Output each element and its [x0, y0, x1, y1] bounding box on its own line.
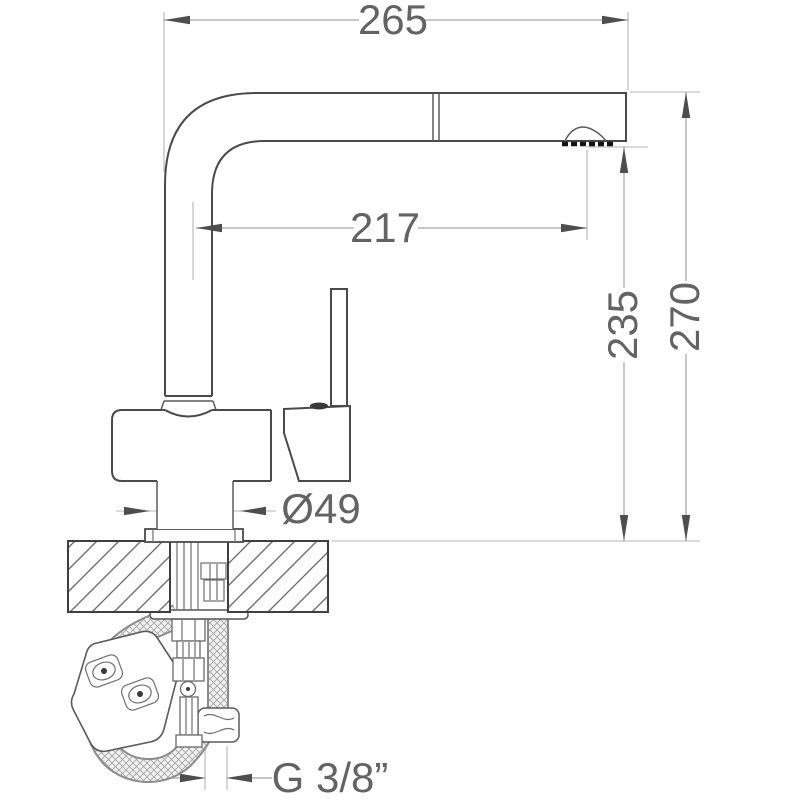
valve-body — [112, 410, 271, 481]
dim-diameter-label: Ø49 — [281, 485, 360, 532]
handle-lever — [331, 289, 347, 406]
hose-counterweight — [72, 631, 178, 751]
lever-handle — [284, 289, 350, 481]
thread-connector-g38 — [198, 708, 239, 742]
faucet-dimension-drawing: 265 217 235 270 Ø49 G 3/8” — [0, 0, 800, 800]
base-flange — [145, 529, 243, 542]
handle-pivot — [310, 403, 328, 410]
dim-217-label: 217 — [350, 204, 420, 251]
dim-265-label: 265 — [358, 0, 428, 43]
spout — [161, 93, 626, 410]
dim-235-label: 235 — [599, 290, 646, 360]
countertop-section — [68, 541, 328, 612]
technical-drawing-canvas: 265 217 235 270 Ø49 G 3/8” — [0, 0, 800, 800]
riser-collar — [161, 401, 216, 410]
handle-body — [284, 406, 350, 481]
dim-270-label: 270 — [661, 282, 708, 352]
dim-thread-label: G 3/8” — [272, 754, 389, 800]
mounting-shank — [177, 542, 226, 610]
aerator-housing — [565, 127, 606, 141]
